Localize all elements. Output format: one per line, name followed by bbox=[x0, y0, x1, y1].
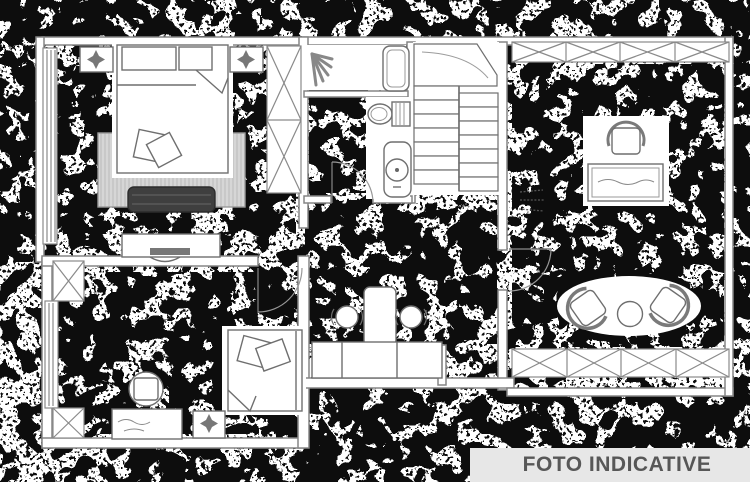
banner-label: FOTO INDICATIVE bbox=[509, 453, 712, 477]
side-table bbox=[618, 302, 643, 327]
foto-indicative-banner: FOTO INDICATIVE bbox=[470, 448, 750, 482]
floor-plan-photo: FOTO INDICATIVE bbox=[0, 0, 750, 482]
vanity-table bbox=[364, 287, 396, 346]
tv bbox=[150, 248, 190, 255]
pillow bbox=[179, 47, 212, 70]
desk bbox=[588, 164, 663, 201]
pillow bbox=[122, 47, 176, 70]
bench bbox=[128, 187, 215, 212]
staircase bbox=[413, 42, 499, 195]
floor-plan-drawing bbox=[0, 0, 750, 482]
stool bbox=[336, 306, 358, 328]
toilet bbox=[368, 104, 392, 124]
stool bbox=[400, 306, 422, 328]
cabinet bbox=[312, 342, 442, 378]
